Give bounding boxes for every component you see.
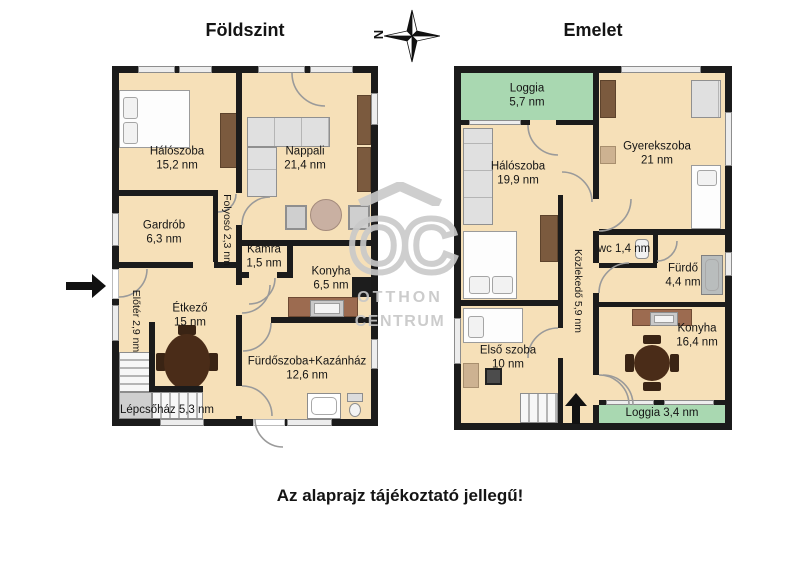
room-label: Folyosó 2,3 nm	[221, 194, 233, 266]
gf-toilet-bowl	[349, 403, 361, 417]
uf-stairs	[520, 393, 558, 423]
uf-doorway-firstroom	[558, 328, 563, 358]
room-area: 6,3 nm	[146, 233, 181, 247]
room-area: 5,7 nm	[509, 96, 544, 110]
gf-wall-bedroom-south	[119, 190, 218, 196]
room-label-etkezo: Étkező 15 nm	[172, 302, 207, 329]
uf-childroom-rug	[600, 80, 616, 118]
uf-bathtub	[701, 255, 723, 295]
uf-loggia-lower-window-2	[664, 400, 714, 405]
gf-window-bathroom-east	[371, 339, 378, 369]
room-name: Konyha	[677, 322, 716, 336]
uf-window-bath-east	[725, 252, 732, 276]
entrance-arrow	[66, 274, 106, 298]
room-label-wc: wc 1,4 nm	[598, 243, 650, 257]
room-name: Fürdő	[668, 262, 698, 276]
gf-window-dining	[112, 305, 119, 341]
room-label-kozlekedo: Közlekedő 5,9 nm	[572, 249, 584, 333]
uf-wall-corridor-west	[558, 195, 563, 423]
entrance-arrow-stem	[66, 282, 92, 290]
uf-firstroom-bed	[463, 308, 523, 343]
gf-shower-tray	[311, 397, 337, 415]
room-label-haloszoba: Hálószoba 15,2 nm	[150, 145, 204, 172]
chair	[625, 354, 634, 372]
room-label-furdoszoba: Fürdőszoba+Kazánház 12,6 nm	[248, 355, 367, 382]
uf-bedroom-sofa	[463, 128, 493, 225]
room-label: Loggia 3,4 nm	[626, 407, 699, 421]
gf-shower	[307, 393, 341, 419]
uf-dining-set	[625, 335, 679, 391]
gf-dining-table	[164, 334, 210, 390]
uf-loggia-upper-window	[469, 120, 521, 125]
room-area: 21 nm	[641, 154, 673, 168]
gf-window-livingroom-1	[258, 66, 305, 73]
gf-window-bedroom-2	[179, 66, 212, 73]
room-name: Fürdőszoba+Kazánház	[248, 355, 367, 369]
room-area: 19,9 nm	[497, 174, 539, 188]
entrance-arrow-head	[92, 274, 106, 298]
room-name: Hálószoba	[150, 145, 204, 159]
uf-kitchen-sink-basin	[654, 315, 674, 323]
stairs-up-arrow-head	[565, 393, 587, 406]
gf-bedroom-bed	[119, 90, 190, 148]
room-name: Étkező	[172, 302, 207, 316]
watermark-monogram: OC	[336, 211, 464, 283]
gf-doorway-wardrobe	[193, 262, 214, 268]
room-name: Gyerekszoba	[623, 140, 691, 154]
room-area: 21,4 nm	[284, 159, 326, 173]
uf-childroom-bed	[691, 165, 721, 229]
gf-window-wardrobe	[112, 213, 119, 246]
room-name: Gardrób	[143, 219, 185, 233]
uf-window-childroom-east	[725, 112, 732, 166]
gf-wall-dining-L-horizontal	[149, 386, 203, 392]
gf-entrance-door-opening	[112, 269, 119, 299]
uf-wall-wc-east	[653, 235, 658, 263]
room-label-nappali: Nappali 21,4 nm	[284, 145, 326, 172]
gf-window-stairwell-south	[160, 419, 204, 426]
uf-firstroom-mat	[463, 363, 479, 388]
room-label: Lépcsőház 5,3 nm	[120, 404, 214, 418]
upper-floor-plan: Loggia 5,7 nm Hálószoba 19,9 nm Gyereksz…	[454, 66, 732, 430]
uf-bathtub-basin	[705, 259, 719, 291]
gf-wall-corridor-west	[213, 190, 218, 262]
room-label-kamra: Kamra 1,5 nm	[246, 243, 281, 270]
room-label-konyha-uf: Konyha 16,4 nm	[676, 322, 718, 349]
gf-armchair-left	[285, 205, 307, 230]
room-name: Kamra	[247, 243, 281, 257]
floorplan-page: Földszint Emelet N OC OTTHON CENTRUM	[0, 0, 800, 565]
watermark-word-centrum: CENTRUM	[336, 313, 464, 331]
room-name: Nappali	[286, 145, 325, 159]
gf-window-livingroom-2	[310, 66, 353, 73]
gf-doorway-livingroom	[236, 193, 242, 225]
pillow	[468, 316, 484, 338]
room-label: Közlekedő 5,9 nm	[572, 249, 584, 333]
gf-livingroom-sofa-vertical	[247, 147, 277, 197]
uf-childroom-sofa	[691, 80, 721, 118]
room-area: 16,4 nm	[676, 336, 718, 350]
gf-doorway-pantry	[249, 272, 277, 278]
room-label-haloszoba-uf: Hálószoba 19,9 nm	[491, 160, 545, 187]
room-label-lepcsohaz: Lépcsőház 5,3 nm	[120, 404, 214, 418]
gf-window-bedroom-1	[138, 66, 175, 73]
room-label-eloter: Előtér 2,9 nm	[130, 290, 142, 352]
room-label-gardrob: Gardrób 6,3 nm	[143, 219, 185, 246]
upper-floor-title: Emelet	[454, 20, 732, 41]
room-area: 15 nm	[174, 316, 206, 330]
pillow	[123, 97, 138, 119]
uf-doorway-kitchen	[593, 375, 599, 405]
pillow	[469, 276, 490, 294]
compass-rose-icon	[384, 8, 440, 64]
room-label-furdo: Fürdő 4,4 nm	[665, 262, 700, 289]
gf-wall-central	[236, 73, 242, 419]
uf-loggia-door-opening	[530, 120, 556, 125]
gf-doorway-kitchen-hall	[242, 317, 271, 323]
uf-childroom-cabinet	[600, 146, 616, 164]
room-area: 10 nm	[492, 358, 524, 372]
gf-wall-dining-L-vertical	[149, 322, 155, 392]
room-label-loggia-felso: Loggia 5,7 nm	[509, 82, 544, 109]
gf-doorway-bathroom	[236, 386, 242, 416]
gf-livingroom-sofa-horizontal	[247, 117, 330, 147]
ground-floor-title: Földszint	[112, 20, 378, 41]
uf-window-childroom-north	[621, 66, 701, 73]
room-name: Hálószoba	[491, 160, 545, 174]
uf-wall-childroom-south	[599, 229, 725, 235]
pillow	[123, 122, 138, 144]
room-label-folyoso: Folyosó 2,3 nm	[221, 194, 233, 266]
stairs-up-arrow-stem	[572, 404, 580, 424]
room-area: 1,5 nm	[246, 257, 281, 271]
room-name: Első szoba	[480, 344, 536, 358]
uf-bedroom-rug	[540, 215, 558, 262]
disclaimer-text: Az alaprajz tájékoztató jellegű!	[0, 486, 800, 506]
pillow	[492, 276, 513, 294]
room-name: Loggia	[510, 82, 545, 96]
stairs-up-arrow	[565, 393, 587, 424]
room-area: 15,2 nm	[156, 159, 198, 173]
chair	[643, 382, 661, 391]
watermark-word-otthon: OTTHON	[336, 289, 464, 307]
gf-toilet-tank	[347, 393, 363, 402]
room-label-elso-szoba: Első szoba 10 nm	[480, 344, 536, 371]
gf-doorway-dining	[236, 285, 242, 315]
uf-wall-wc-south	[599, 263, 657, 268]
uf-wall-bath-south	[599, 302, 725, 307]
gf-stairs-flight-1	[119, 352, 152, 392]
watermark-roof-icon	[352, 182, 448, 206]
room-area: 12,6 nm	[286, 369, 328, 383]
pillow	[697, 170, 717, 186]
chair	[670, 354, 679, 372]
gf-back-door-opening	[253, 419, 285, 426]
gf-window-livingroom-east	[371, 93, 378, 125]
room-area: 4,4 nm	[665, 276, 700, 290]
otthon-centrum-watermark: OC OTTHON CENTRUM	[336, 182, 464, 331]
chair	[643, 335, 661, 344]
room-label-gyerekszoba: Gyerekszoba 21 nm	[623, 140, 691, 167]
room-label: wc 1,4 nm	[598, 243, 650, 257]
gf-window-bathroom-south	[287, 419, 332, 426]
uf-loggia-lower-window-1	[606, 400, 654, 405]
uf-bedroom-bed	[463, 231, 517, 299]
gf-wall-wardrobe-south	[119, 262, 236, 268]
uf-dining-table	[634, 345, 670, 381]
room-label: Előtér 2,9 nm	[130, 290, 142, 352]
uf-doorway-childroom	[593, 199, 599, 231]
uf-wall-bedroom-south	[461, 300, 558, 306]
uf-kitchen-sink	[650, 312, 678, 326]
room-label-loggia-also: Loggia 3,4 nm	[626, 407, 699, 421]
gf-livingroom-cabinet-upper	[357, 95, 371, 145]
uf-doorway-bath-hall	[593, 263, 599, 293]
